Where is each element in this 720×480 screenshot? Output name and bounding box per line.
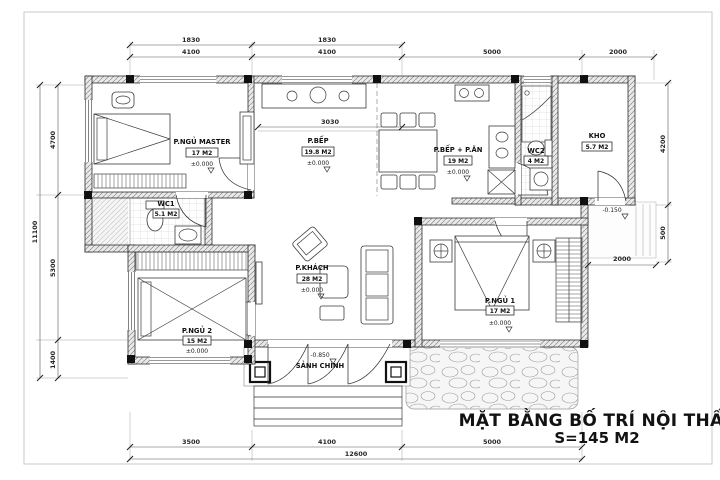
dim-bottom-total: 12600 (345, 450, 368, 458)
dining-table (379, 130, 437, 172)
title-line2: S=145 M2 (554, 429, 639, 447)
svg-text:P.NGỦ MASTER: P.NGỦ MASTER (174, 136, 232, 146)
svg-text:P.NGỦ 1: P.NGỦ 1 (485, 295, 515, 305)
cooktop-counter (455, 85, 489, 101)
dim-top-lower-2: 4100 (318, 48, 337, 56)
nightstand-left (430, 240, 452, 262)
label-dining: P.BẾP + P.ĂN 19 M2 ±0.000 (434, 144, 483, 181)
porch-column-right-core (391, 367, 401, 377)
master-bed (94, 114, 170, 164)
svg-text:15 M2: 15 M2 (187, 338, 208, 345)
window-kitchen-top (282, 76, 352, 84)
svg-text:KHO: KHO (589, 132, 606, 140)
label-bed2: P.NGỦ 2 15 M2 ±0.000 (182, 325, 212, 355)
svg-text:WC1: WC1 (157, 200, 174, 208)
label-kho: KHO 5.7 M2 (582, 132, 612, 151)
svg-text:SẢNH CHÍNH: SẢNH CHÍNH (296, 360, 345, 370)
svg-text:±0.000: ±0.000 (307, 160, 329, 167)
svg-text:17 M2: 17 M2 (192, 150, 213, 157)
dim-top-lower-3: 5000 (483, 48, 502, 56)
svg-text:±0.000: ±0.000 (191, 161, 213, 168)
dim-top-lower-4: 2000 (609, 48, 628, 56)
side-strip (88, 198, 128, 246)
dim-top-lower-1: 4100 (182, 48, 201, 56)
svg-text:±0.000: ±0.000 (489, 320, 511, 327)
window-master-top (140, 76, 216, 84)
nightstand-right (533, 240, 555, 262)
level-mark (324, 167, 330, 172)
label-wc2: WC2 4 M2 (524, 147, 548, 165)
svg-text:19.8 M2: 19.8 M2 (304, 149, 331, 156)
floor-plan-drawing: 1830 1830 4100 4100 5000 2000 3500 4100 … (0, 0, 720, 480)
bed2-wardrobe (136, 252, 248, 270)
dim-right-1: 4200 (659, 134, 667, 153)
kho-door (598, 171, 626, 201)
dining-chair (381, 113, 397, 127)
dining-chair (400, 113, 416, 127)
svg-text:-0.850: -0.850 (310, 352, 330, 359)
window-master-left (85, 100, 93, 162)
level-mark (464, 176, 470, 181)
svg-text:28 M2: 28 M2 (302, 276, 323, 283)
level-mark (506, 327, 512, 332)
dim-top-upper-2: 1830 (318, 36, 337, 44)
dim-bottom-1: 3500 (182, 438, 201, 446)
dining-chair (419, 175, 435, 189)
porch-column-left-core (255, 367, 265, 377)
label-kitchen: P.BẾP 19.8 M2 ±0.000 (302, 135, 334, 172)
svg-text:±0.000: ±0.000 (447, 169, 469, 176)
side-table (320, 306, 344, 320)
kitchen-counter (262, 84, 366, 108)
title-line1: MẶT BẰNG BỐ TRÍ NỘI THẤT (459, 407, 720, 431)
window-bed2-bottom (150, 357, 230, 365)
dining-furniture (379, 85, 515, 194)
svg-text:P.BẾP: P.BẾP (307, 135, 328, 145)
svg-text:4 M2: 4 M2 (528, 158, 544, 165)
master-wardrobe (240, 112, 254, 164)
master-ottoman (112, 92, 134, 108)
master-closet (94, 174, 186, 188)
dining-chair (400, 175, 416, 189)
level-mark (208, 168, 214, 173)
dim-right-inner: 2000 (613, 255, 632, 263)
window-bed1-bottom (440, 340, 540, 348)
armchair (292, 226, 329, 262)
svg-text:±0.000: ±0.000 (301, 287, 323, 294)
dim-left-1: 4700 (49, 130, 57, 149)
dim-left-3: 1400 (49, 350, 57, 369)
svg-text:19 M2: 19 M2 (448, 158, 469, 165)
svg-text:-0.150: -0.150 (602, 207, 622, 214)
label-master: P.NGỦ MASTER 17 M2 ±0.000 (174, 136, 232, 173)
dim-kitchen-width: 3030 (321, 118, 340, 126)
washing-machine (530, 168, 552, 190)
dining-chair (419, 113, 435, 127)
dim-right-2: 500 (659, 226, 667, 240)
dim-top-upper-1: 1830 (182, 36, 201, 44)
svg-text:P.KHÁCH: P.KHÁCH (295, 263, 329, 272)
label-bed1: P.NGỦ 1 17 M2 ±0.000 (485, 295, 515, 332)
floor-plan-sheet: 1830 1830 4100 4100 5000 2000 3500 4100 … (0, 0, 720, 480)
svg-text:P.BẾP + P.ĂN: P.BẾP + P.ĂN (434, 144, 483, 154)
svg-text:5.1 M2: 5.1 M2 (155, 211, 178, 218)
dim-bottom-3: 5000 (483, 438, 502, 446)
dim-bottom-2: 4100 (318, 438, 337, 446)
svg-text:±0.000: ±0.000 (186, 348, 208, 355)
dim-left-total: 11100 (31, 220, 39, 243)
side-path (588, 202, 656, 258)
svg-text:17 M2: 17 M2 (490, 308, 511, 315)
tv-cabinet (256, 262, 262, 304)
window-wc2-top (524, 76, 550, 84)
window-bed2-left (128, 272, 136, 330)
toilet-tank (545, 140, 552, 156)
dim-left-2: 5300 (49, 258, 57, 277)
dining-chair (381, 175, 397, 189)
svg-text:WC2: WC2 (527, 147, 544, 155)
entry-steps (254, 386, 402, 426)
terrace-stone-patio (406, 347, 578, 409)
svg-text:P.NGỦ 2: P.NGỦ 2 (182, 325, 212, 335)
svg-text:5.7 M2: 5.7 M2 (586, 144, 609, 151)
